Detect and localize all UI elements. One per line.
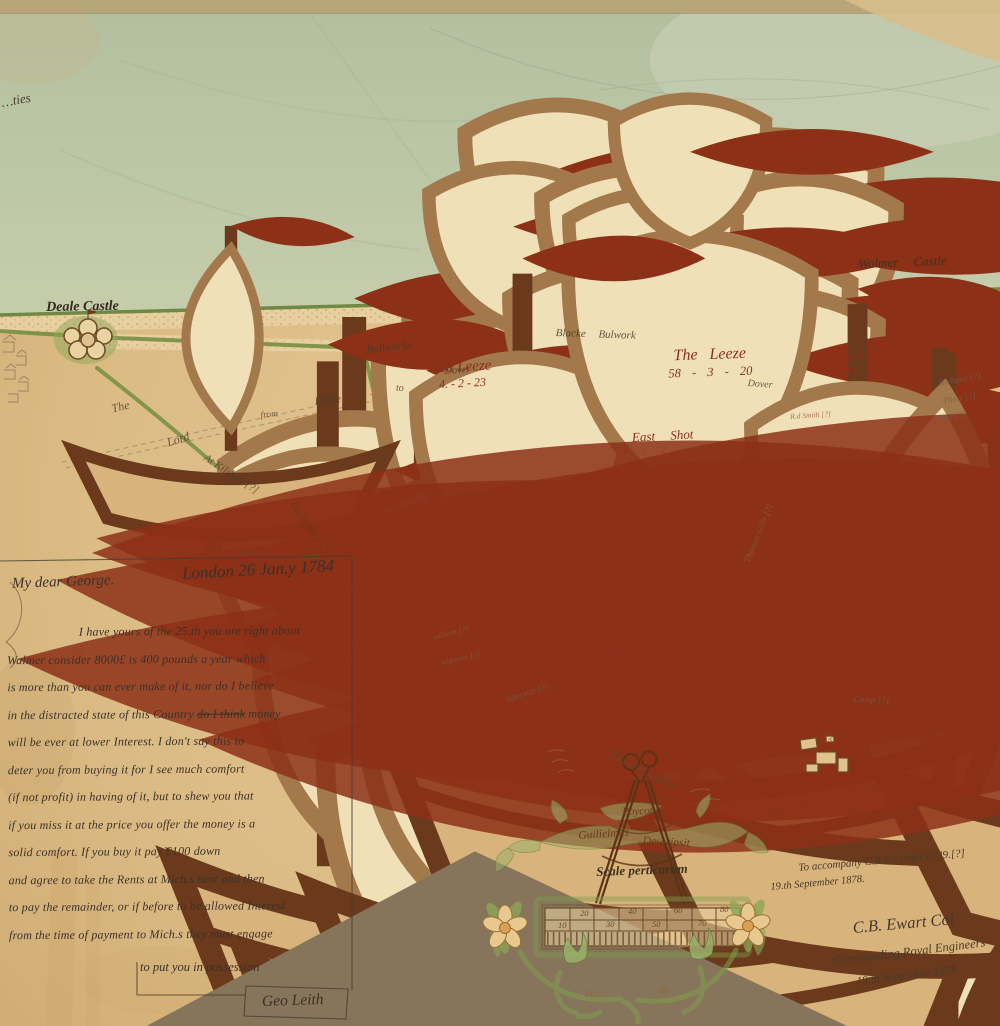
scale-number: 70	[698, 918, 707, 928]
letter-line: from the time of payment to Mich.s they …	[9, 925, 351, 955]
field-label-the-leeze: The Leeze 58 - 3 - 20	[644, 343, 775, 382]
letter-body: I have yours of the 25.th you are right …	[7, 623, 351, 955]
scale-number-below: 40	[658, 985, 669, 997]
letter-line: Walmer consider 8000£ is 400 pounds a ye…	[7, 650, 349, 680]
letter-line: to pay the remainder, or if before to be…	[9, 898, 351, 928]
scale-number: 10	[558, 920, 567, 930]
field-label-east-shot: East Shot 4 - 2 - 7	[607, 425, 718, 460]
walmer-castle-label: Walmer Castle	[858, 253, 947, 272]
letter-line: solid comfort. If you buy it pay £100 do…	[8, 843, 350, 873]
letter-line: is more than you can ever make of it, no…	[7, 678, 349, 708]
letter-line: if you miss it at the price you offer th…	[8, 815, 350, 845]
scale-number: 40	[628, 906, 637, 916]
cartouche-ribbon-right: Descripsit	[642, 835, 690, 849]
scale-number: 30	[606, 919, 615, 929]
letter-closing: to put you in possession	[140, 960, 259, 975]
deale-castle-label: Deale Castle	[46, 299, 119, 316]
cartouche-ribbon-top: Boycot	[622, 805, 653, 818]
letter-struck-words: do I think	[197, 706, 245, 720]
scale-number: 50	[652, 919, 661, 929]
letter-line: will be ever at lower Interest. I don't …	[8, 733, 350, 763]
historic-walmer-map: …ties Deale Castle Walmer Castle Bullwor…	[0, 0, 1000, 1026]
letter-line: deter you from buying it for I see much …	[8, 760, 350, 790]
cartouche-scale-title: Scale perticarum	[596, 861, 688, 880]
scale-number-below: 10	[584, 988, 595, 1000]
letter-signature: Geo Leith	[262, 991, 324, 1011]
field-area: 5 - 3 - 24	[852, 727, 912, 739]
road-label-from: from	[260, 409, 279, 421]
scale-number: 60	[674, 905, 683, 915]
scale-number: 80	[720, 904, 729, 914]
letter-line-segment: money	[245, 706, 281, 720]
letter-line-segment: in the distracted state of this Country	[7, 706, 197, 721]
letter-line: and agree to take the Rents at Mich.s ne…	[9, 870, 351, 900]
field-area-7-0-23: 7 - 0 - 23	[848, 786, 908, 798]
letter-line: in the distracted state of this Country …	[7, 705, 349, 735]
road-label-dover-2: Dover	[747, 378, 773, 391]
pencil-note-camp: Camp [?]	[854, 694, 890, 705]
scale-number: 20	[580, 908, 589, 918]
letter-greeting: My dear George.	[12, 572, 115, 593]
letter-line: I have yours of the 25.th you are right …	[7, 623, 349, 653]
letter-line: (if not profit) in having of it, but to …	[8, 788, 350, 818]
field-area: 7 - 0 - 23	[848, 786, 908, 798]
field-area-5-3-24: 5 - 3 - 24	[852, 727, 912, 739]
